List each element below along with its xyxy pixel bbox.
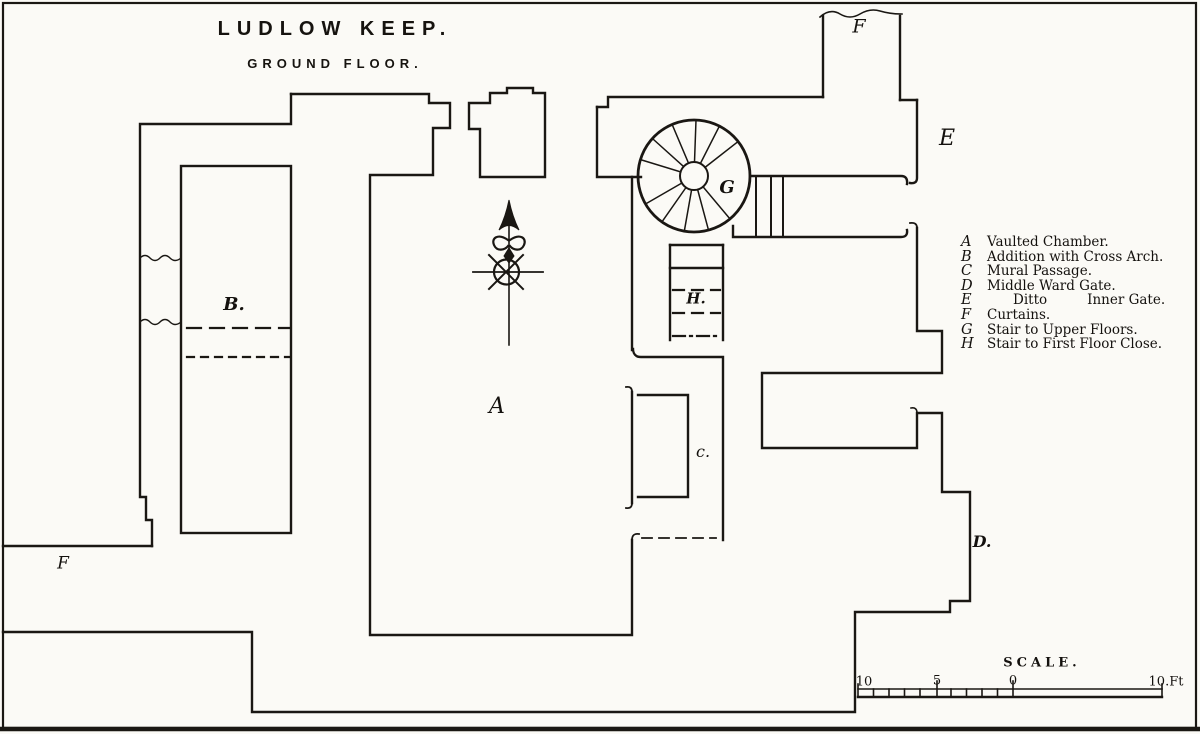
legend-key-d: D — [961, 278, 987, 294]
plan-label-c: c. — [696, 444, 710, 460]
legend-row-a: A Vaulted Chamber. — [961, 234, 1165, 249]
plan-label-f-top: F — [852, 18, 865, 37]
plan-label-e: E — [939, 128, 955, 150]
legend-desc-e-ditto: Ditto — [987, 292, 1047, 308]
legend-desc-e-inner-gate: Inner Gate. — [1047, 292, 1165, 308]
scale-title: SCALE. — [1003, 656, 1080, 671]
title-block: LUDLOW KEEP. GROUND FLOOR. — [215, 18, 455, 71]
scale-tick-10-left: 10 — [856, 675, 873, 690]
legend-row-c: C Mural Passage. — [961, 263, 1165, 278]
scale-tick-0: 0 — [1009, 674, 1017, 689]
legend-row-f: F Curtains. — [961, 307, 1165, 322]
legend-desc-b: Addition with Cross Arch. — [987, 249, 1163, 265]
legend-desc-g: Stair to Upper Floors. — [987, 322, 1138, 338]
plan-label-g: G — [719, 179, 734, 197]
legend: A Vaulted Chamber. B Addition with Cross… — [961, 234, 1165, 351]
spiral-stair-g — [638, 120, 750, 232]
legend-key-c: C — [961, 263, 987, 279]
bailey-walls — [3, 228, 970, 712]
legend-row-d: D Middle Ward Gate. — [961, 278, 1165, 293]
legend-desc-f: Curtains. — [987, 307, 1050, 323]
gate-e-walls — [597, 97, 917, 237]
legend-desc-a: Vaulted Chamber. — [987, 234, 1109, 250]
legend-desc-c: Mural Passage. — [987, 263, 1092, 279]
legend-row-h: H Stair to First Floor Close. — [961, 336, 1165, 351]
legend-key-b: B — [961, 249, 987, 265]
plan-label-a: A — [489, 396, 505, 418]
legend-row-b: B Addition with Cross Arch. — [961, 249, 1165, 264]
north-arrow — [473, 200, 543, 345]
page-title: LUDLOW KEEP. — [215, 18, 455, 41]
legend-key-f: F — [961, 307, 987, 323]
legend-row-e: E Ditto Inner Gate. — [961, 292, 1165, 307]
keep-a-walls — [291, 88, 716, 635]
plan-label-h: H. — [686, 292, 705, 307]
legend-key-h: H — [961, 336, 987, 352]
scale-tick-5: 5 — [933, 674, 941, 689]
building-b-walls — [3, 94, 291, 546]
plan-label-d: D. — [973, 534, 992, 550]
scale-tick-10ft: 10.Ft — [1149, 675, 1184, 690]
legend-row-g: G Stair to Upper Floors. — [961, 322, 1165, 337]
plan-label-f-left: F — [57, 556, 69, 573]
legend-key-a: A — [961, 234, 987, 250]
legend-key-e: E — [961, 292, 987, 308]
engraving-plate: LUDLOW KEEP. GROUND FLOOR. A B. c. D. E … — [0, 0, 1200, 734]
legend-key-g: G — [961, 322, 987, 338]
legend-desc-h: Stair to First Floor Close. — [987, 336, 1162, 352]
floor-plan-drawing — [0, 0, 1200, 734]
page-subtitle: GROUND FLOOR. — [215, 56, 455, 71]
plan-label-b: B. — [223, 296, 244, 314]
legend-desc-d: Middle Ward Gate. — [987, 278, 1116, 294]
